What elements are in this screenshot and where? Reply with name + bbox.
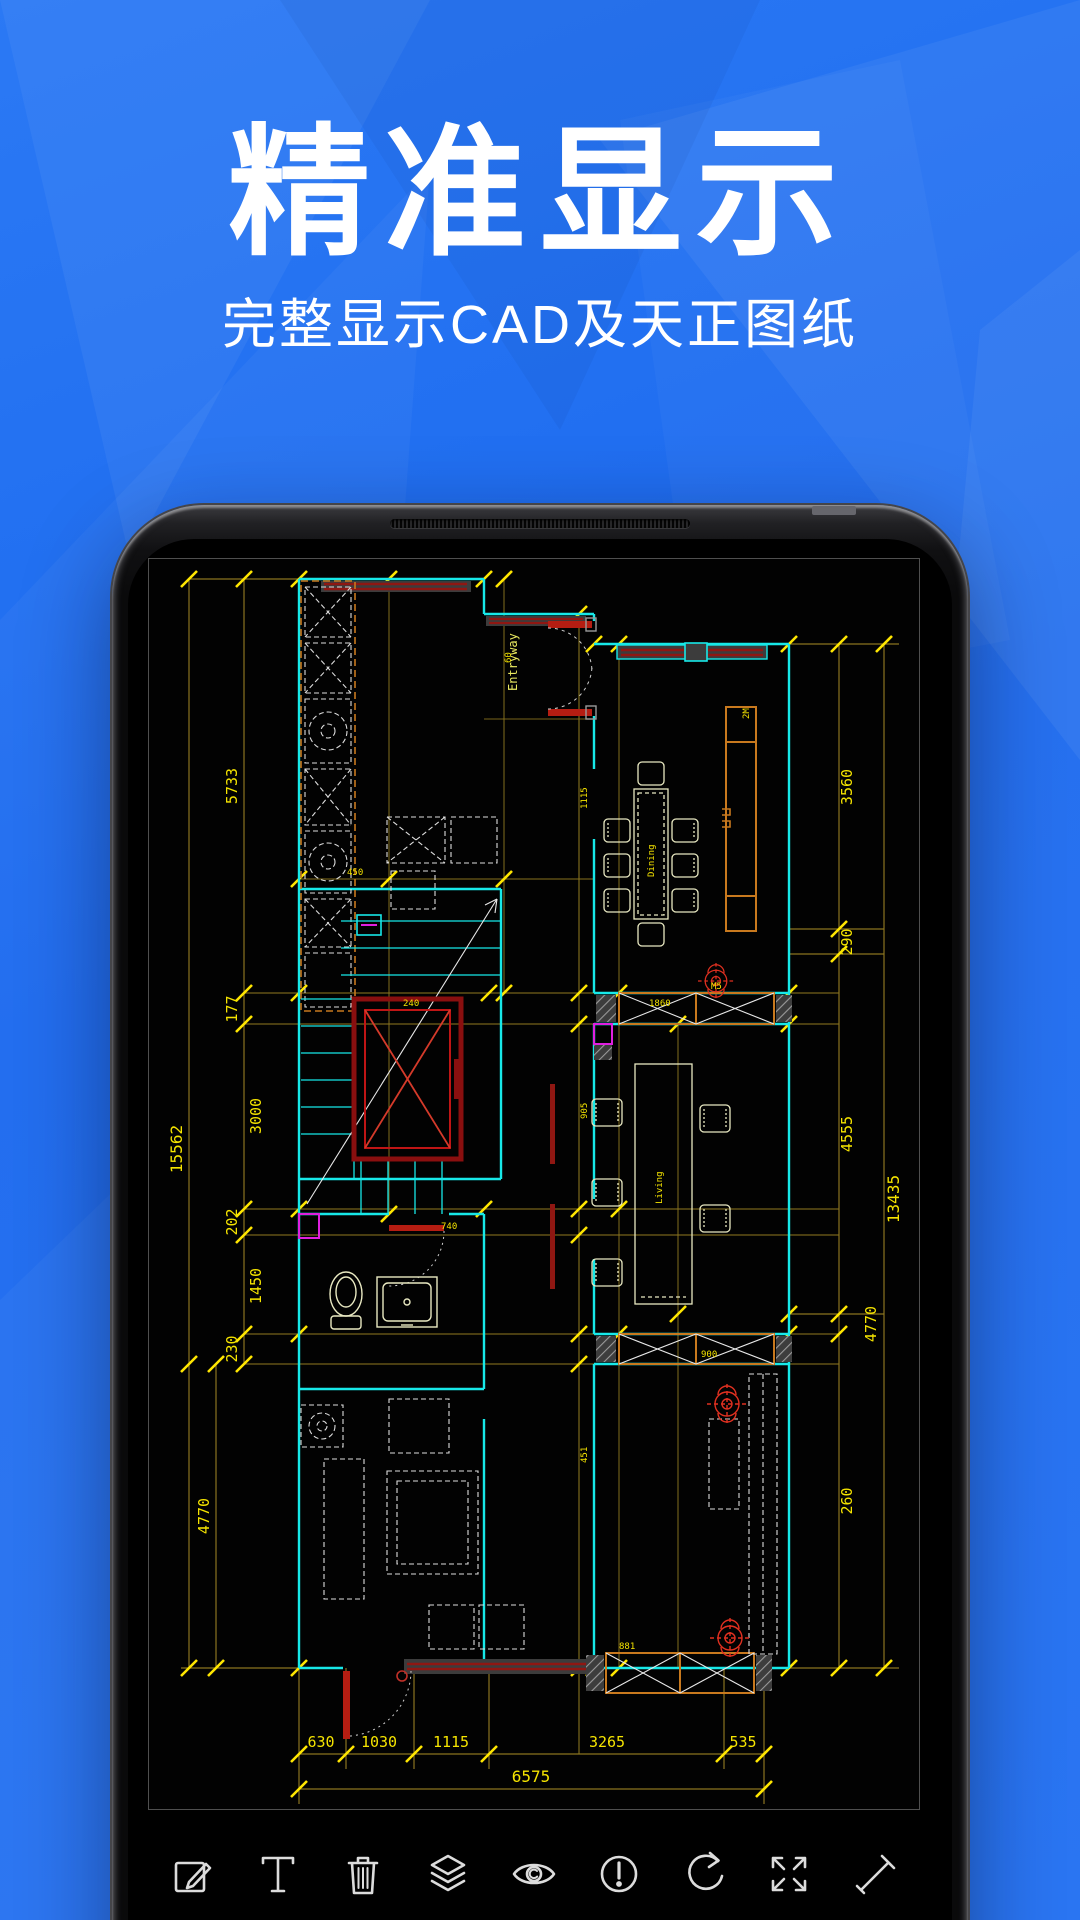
annotation: M5 — [711, 982, 722, 992]
measure-button[interactable] — [851, 1851, 897, 1897]
room-label-dining: Dining — [647, 844, 657, 877]
trash-icon — [340, 1851, 386, 1897]
cad-dimension-lines — [181, 579, 899, 1804]
fullscreen-button[interactable] — [766, 1851, 812, 1897]
dim-label: 3000 — [247, 1098, 265, 1134]
cad-canvas[interactable]: 5733 177 3000 202 1450 230 4770 15562 35… — [148, 558, 920, 1810]
dim-label: 630 — [307, 1733, 334, 1751]
cad-elevator — [354, 999, 462, 1159]
antenna-band — [812, 506, 856, 515]
cad-fan-symbols — [698, 963, 750, 1658]
edit-icon — [170, 1851, 216, 1897]
annotation: 450 — [347, 868, 363, 878]
annotation: 1115 — [580, 787, 590, 809]
dim-label: 260 — [838, 1487, 856, 1514]
expand-icon — [766, 1851, 812, 1897]
visibility-button[interactable] — [511, 1851, 557, 1897]
annotation: 900 — [701, 1350, 717, 1360]
cad-dimension-ticks — [181, 571, 892, 1797]
annotation: 60 — [504, 652, 514, 663]
cad-lower-left-furniture — [301, 1399, 524, 1649]
layers-button[interactable] — [425, 1851, 471, 1897]
eye-icon — [511, 1851, 557, 1897]
annotation: 905 — [580, 1103, 590, 1119]
dim-label: 4555 — [838, 1116, 856, 1152]
dim-label: 4770 — [195, 1498, 213, 1534]
dim-label: 1450 — [247, 1268, 265, 1304]
delete-button[interactable] — [340, 1851, 386, 1897]
rotate-icon — [681, 1851, 727, 1897]
dim-label: 535 — [729, 1733, 756, 1751]
text-button[interactable] — [255, 1851, 301, 1897]
dim-total-label: 15562 — [167, 1125, 186, 1173]
cad-dimension-labels: 5733 177 3000 202 1450 230 4770 15562 35… — [167, 768, 903, 1786]
annotation: 740 — [441, 1222, 457, 1232]
dim-label: 3560 — [838, 769, 856, 805]
page-subtitle: 完整显示CAD及天正图纸 — [0, 280, 1080, 359]
promo-page: 精准显示 完整显示CAD及天正图纸 — [0, 0, 1080, 1920]
cad-dining-cabinet — [722, 707, 756, 931]
dim-label: 290 — [838, 928, 856, 955]
dim-label: 1115 — [433, 1733, 469, 1751]
dim-label: 4770 — [862, 1306, 880, 1342]
annotation: 240 — [403, 999, 419, 1009]
dim-label: 230 — [223, 1335, 241, 1362]
annotation: 881 — [619, 1642, 635, 1652]
dim-total-label: 13435 — [884, 1175, 903, 1223]
cad-walls — [299, 579, 789, 1668]
annotation: 451 — [580, 1447, 590, 1463]
page-title: 精准显示 — [0, 116, 1080, 272]
cad-annotations: 1115 905 240 1860 450 740 900 60 451 881… — [347, 652, 752, 1652]
dim-label: 1030 — [361, 1733, 397, 1751]
phone-screen: 5733 177 3000 202 1450 230 4770 15562 35… — [128, 539, 952, 1920]
rotate-button[interactable] — [681, 1851, 727, 1897]
text-icon — [255, 1851, 301, 1897]
dim-total-label: 6575 — [512, 1767, 551, 1786]
edit-button[interactable] — [170, 1851, 216, 1897]
phone-mockup: 5733 177 3000 202 1450 230 4770 15562 35… — [112, 505, 968, 1920]
dim-label: 177 — [223, 995, 241, 1022]
alert-button[interactable] — [596, 1851, 642, 1897]
cad-window-bands — [586, 993, 792, 1693]
dim-label: 5733 — [223, 768, 241, 804]
dim-label: 202 — [223, 1208, 241, 1235]
layers-icon — [425, 1851, 471, 1897]
speaker-grille — [390, 519, 690, 528]
annotation: 1860 — [649, 999, 671, 1009]
dim-label: 3265 — [589, 1733, 625, 1751]
annotation: 2M — [742, 708, 752, 719]
measure-icon — [851, 1851, 897, 1897]
cad-bathroom — [330, 1272, 437, 1329]
cad-toolbar — [170, 1844, 897, 1904]
room-label-living: Living — [655, 1171, 665, 1204]
alert-icon — [596, 1851, 642, 1897]
cad-floorplan: 5733 177 3000 202 1450 230 4770 15562 35… — [149, 559, 919, 1809]
